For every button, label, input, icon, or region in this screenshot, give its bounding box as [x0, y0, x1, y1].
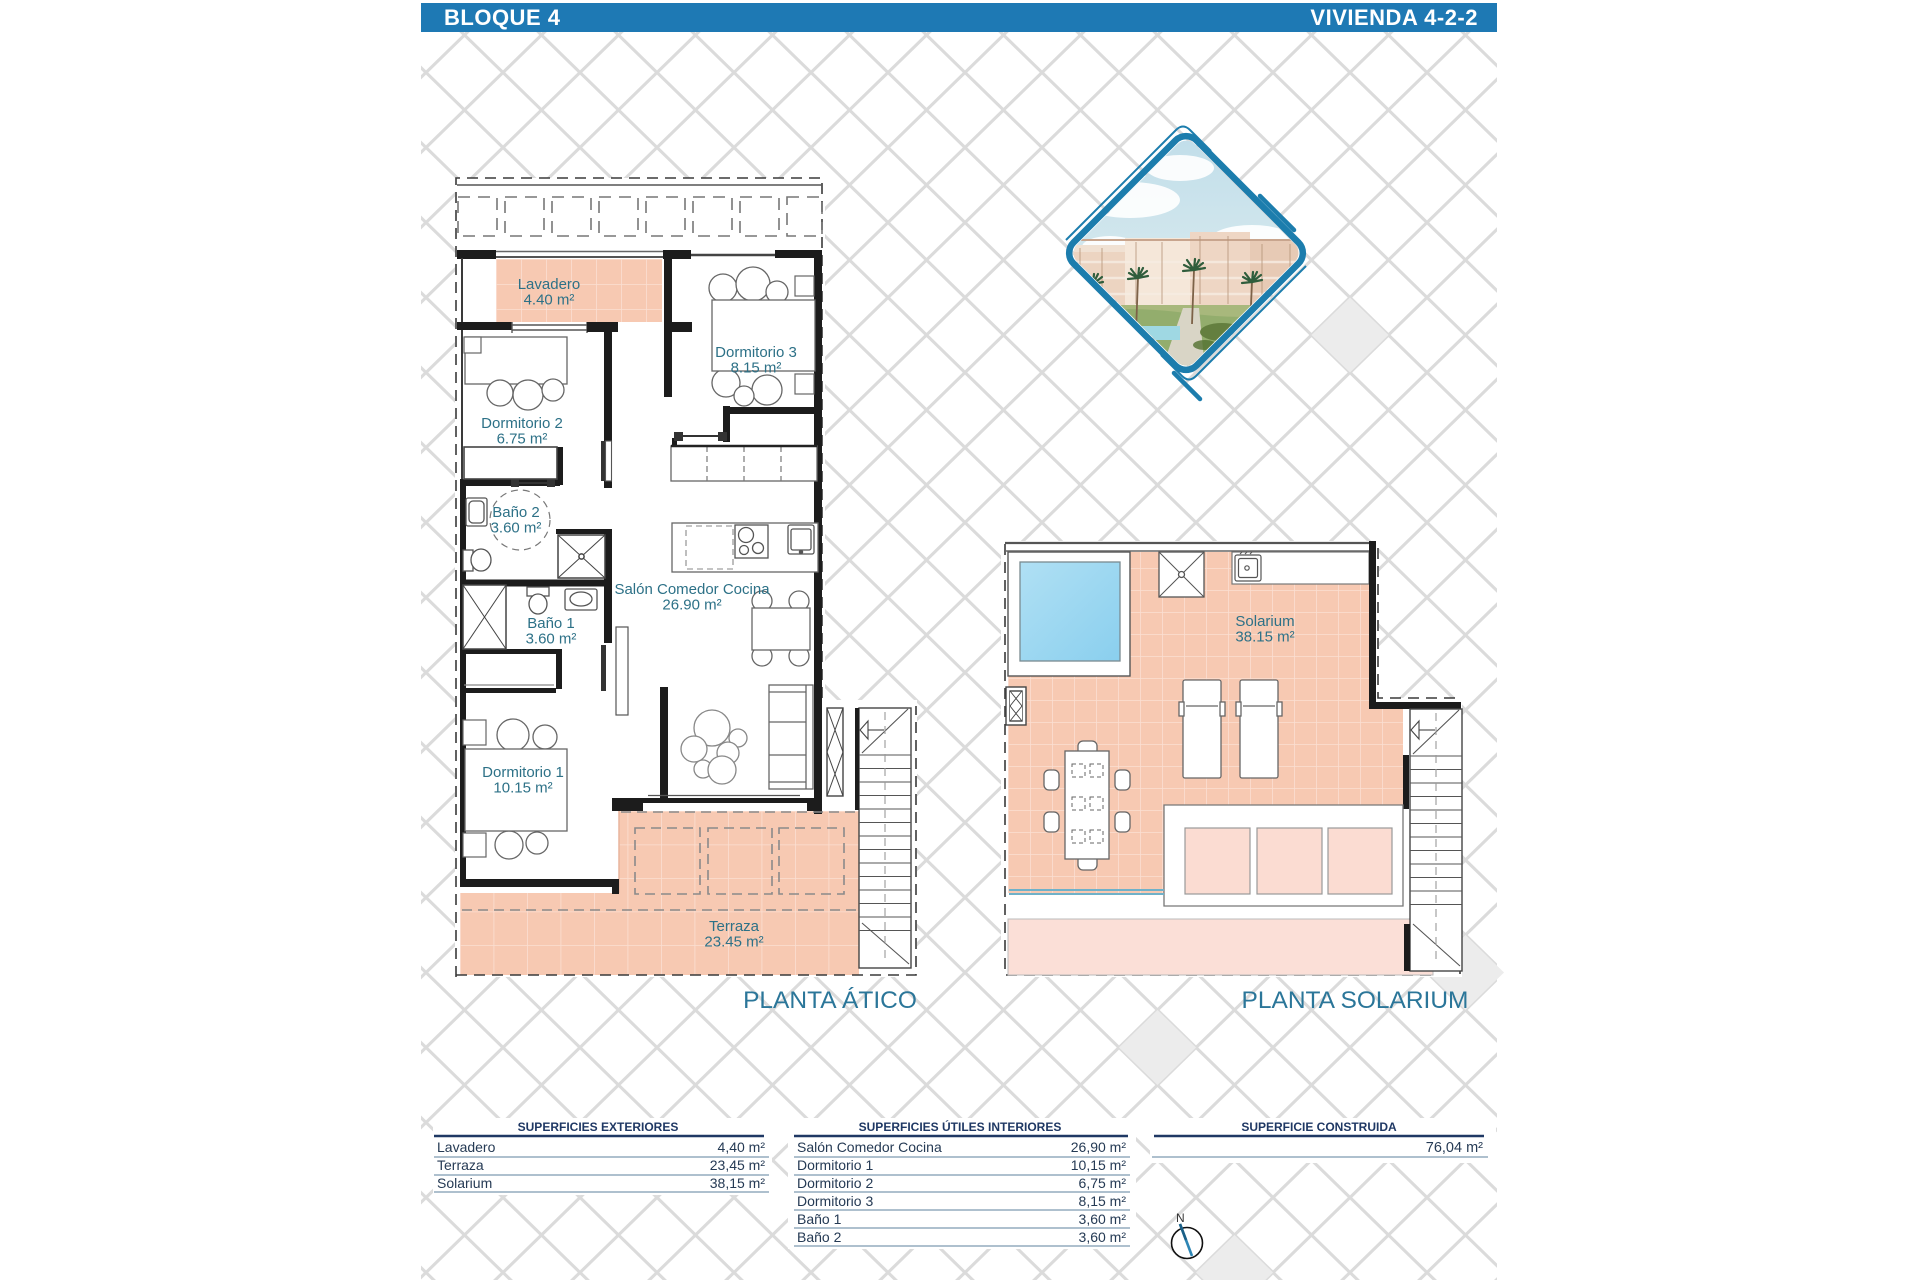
svg-text:76,04 m²: 76,04 m² — [1426, 1140, 1483, 1156]
svg-text:SUPERFICIES EXTERIORES: SUPERFICIES EXTERIORES — [518, 1120, 679, 1134]
svg-text:8,15 m²: 8,15 m² — [1079, 1193, 1127, 1209]
svg-text:38.15 m²: 38.15 m² — [1235, 629, 1294, 646]
svg-text:Baño 2: Baño 2 — [492, 504, 540, 521]
svg-text:Dormitorio 1: Dormitorio 1 — [482, 764, 564, 781]
svg-text:Dormitorio 2: Dormitorio 2 — [797, 1175, 873, 1191]
svg-text:3,60 m²: 3,60 m² — [1079, 1211, 1127, 1227]
svg-text:BLOQUE 4: BLOQUE 4 — [444, 5, 561, 30]
svg-text:Lavadero: Lavadero — [518, 276, 581, 293]
svg-text:23.45 m²: 23.45 m² — [704, 934, 763, 951]
svg-text:10.15 m²: 10.15 m² — [493, 780, 552, 797]
svg-text:6,75 m²: 6,75 m² — [1079, 1175, 1127, 1191]
svg-text:38,15 m²: 38,15 m² — [710, 1175, 766, 1191]
svg-text:26.90 m²: 26.90 m² — [662, 597, 721, 614]
svg-text:Baño 2: Baño 2 — [797, 1229, 842, 1245]
svg-text:Dormitorio 2: Dormitorio 2 — [481, 415, 563, 432]
svg-text:Solarium: Solarium — [1235, 613, 1294, 630]
svg-text:Dormitorio 1: Dormitorio 1 — [797, 1157, 873, 1173]
svg-text:N: N — [1176, 1211, 1185, 1225]
svg-text:4,40 m²: 4,40 m² — [718, 1139, 766, 1155]
svg-text:PLANTA ÁTICO: PLANTA ÁTICO — [743, 987, 917, 1014]
svg-text:Baño 1: Baño 1 — [527, 615, 575, 632]
svg-text:10,15 m²: 10,15 m² — [1071, 1157, 1127, 1173]
svg-text:Dormitorio 3: Dormitorio 3 — [797, 1193, 873, 1209]
svg-text:SUPERFICIES ÚTILES INTERIORES: SUPERFICIES ÚTILES INTERIORES — [859, 1119, 1062, 1134]
svg-text:PLANTA SOLARIUM: PLANTA SOLARIUM — [1242, 987, 1469, 1014]
svg-text:3.60 m²: 3.60 m² — [491, 520, 542, 537]
svg-text:Lavadero: Lavadero — [437, 1139, 496, 1155]
svg-text:Solarium: Solarium — [437, 1175, 492, 1191]
svg-text:26,90 m²: 26,90 m² — [1071, 1139, 1127, 1155]
svg-text:VIVIENDA 4-2-2: VIVIENDA 4-2-2 — [1310, 5, 1478, 30]
svg-text:3.60 m²: 3.60 m² — [526, 631, 577, 648]
svg-text:8.15 m²: 8.15 m² — [731, 360, 782, 377]
svg-text:23,45 m²: 23,45 m² — [710, 1157, 766, 1173]
svg-text:Dormitorio 3: Dormitorio 3 — [715, 344, 797, 361]
svg-text:Terraza: Terraza — [709, 918, 760, 935]
svg-text:6.75 m²: 6.75 m² — [497, 431, 548, 448]
svg-text:3,60 m²: 3,60 m² — [1079, 1229, 1127, 1245]
svg-text:Terraza: Terraza — [437, 1157, 484, 1173]
svg-text:4.40 m²: 4.40 m² — [524, 292, 575, 309]
svg-text:SUPERFICIE CONSTRUIDA: SUPERFICIE CONSTRUIDA — [1241, 1120, 1397, 1134]
svg-text:Baño 1: Baño 1 — [797, 1211, 842, 1227]
svg-text:Salón Comedor Cocina: Salón Comedor Cocina — [797, 1139, 942, 1155]
svg-text:Salón Comedor Cocina: Salón Comedor Cocina — [614, 581, 770, 598]
